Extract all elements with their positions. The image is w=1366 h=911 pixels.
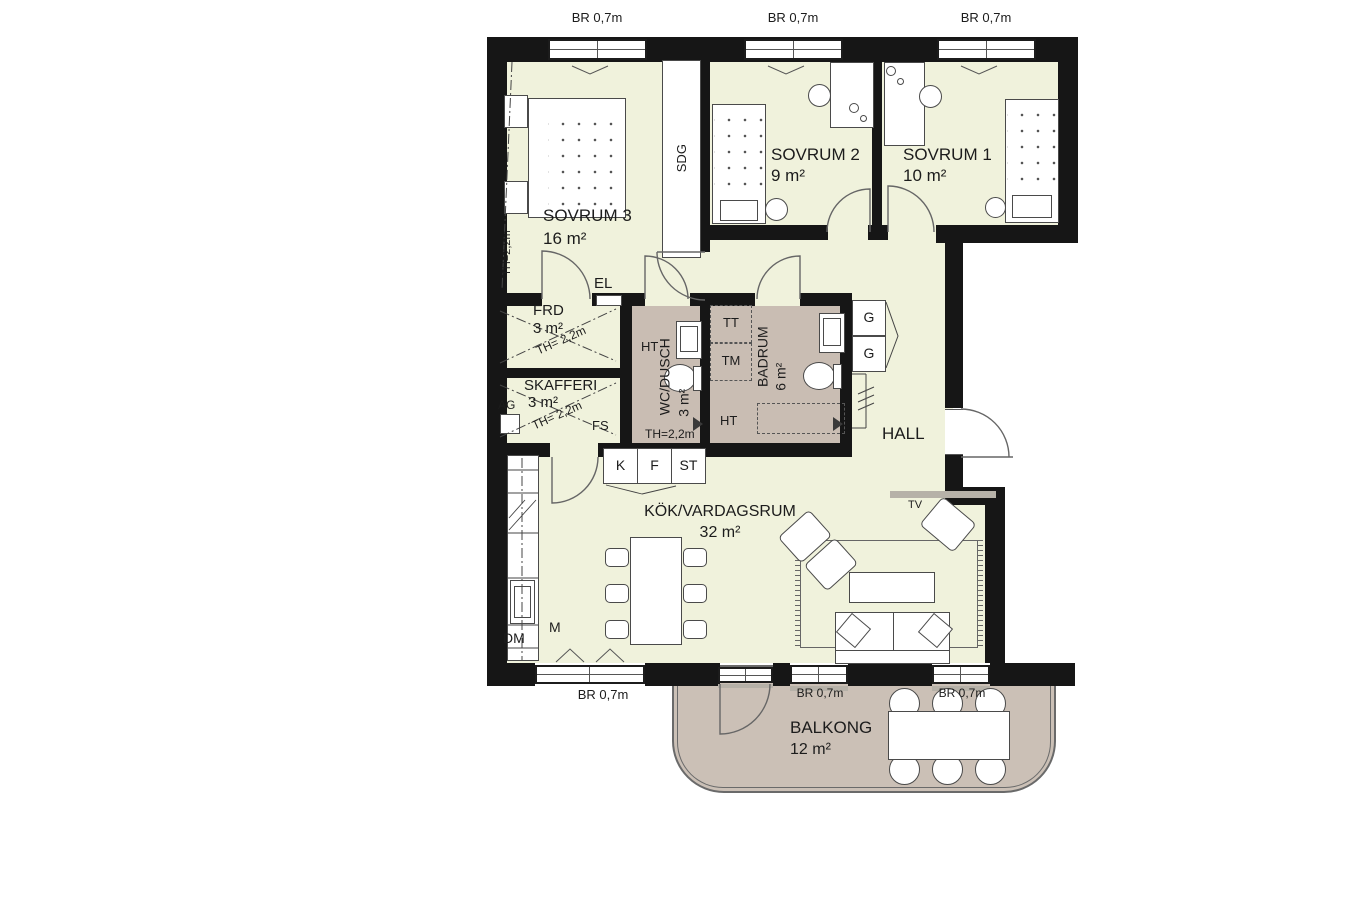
room-name-frd: FRD xyxy=(533,303,564,320)
bed-sovrum2-foot xyxy=(720,200,758,221)
badrum-sink-basin xyxy=(823,318,841,346)
skafferi-ag-unit xyxy=(500,414,520,434)
coffee-table xyxy=(849,572,935,603)
wall-hall-right-b xyxy=(945,455,963,487)
cabinet-k-label: K xyxy=(603,458,638,473)
room-area-sovrum1: 10 m² xyxy=(903,167,946,186)
window-kitchen xyxy=(535,665,645,684)
window-sovrum2 xyxy=(744,39,843,60)
room-name-hall: HALL xyxy=(882,425,925,444)
wall-left xyxy=(487,37,507,686)
dining-chair xyxy=(683,620,707,639)
room-area-kok: 32 m² xyxy=(630,524,810,542)
desk-sovrum2 xyxy=(830,62,874,128)
stool-sovrum2 xyxy=(765,198,788,221)
wardrobe-g2-label: G xyxy=(852,346,886,361)
balcony-door-sill xyxy=(718,684,773,688)
floorplan-canvas: BR 0,7m BR 0,7m BR 0,7m BR 0,7m BR 0,7m … xyxy=(0,0,1366,911)
wall-frd-right xyxy=(620,293,632,455)
wardrobe-sdg-label: SDG xyxy=(675,136,689,180)
double-bed-mattress xyxy=(548,110,618,208)
wall-bedrooms-bottom-b xyxy=(868,225,888,240)
wc-sink-basin xyxy=(680,326,698,352)
window-size-label: BR 0,7m xyxy=(791,687,849,700)
nightstand-1 xyxy=(504,95,528,128)
el-label: EL xyxy=(594,276,612,293)
window-size-label: BR 0,7m xyxy=(941,11,1031,25)
nightstand-2 xyxy=(504,181,528,214)
dining-chair xyxy=(605,548,629,567)
room-name-sovrum2: SOVRUM 2 xyxy=(771,146,860,165)
chair-sovrum1 xyxy=(919,85,942,108)
rug-fringe-right xyxy=(978,540,983,648)
balcony-door-frame xyxy=(718,667,773,683)
wall-living-right xyxy=(985,487,1005,663)
room-area-balkong: 12 m² xyxy=(790,741,831,759)
wall-bottom-c xyxy=(773,663,790,686)
wall-corridor-stub xyxy=(700,225,710,252)
room-area-sovrum2: 9 m² xyxy=(771,167,805,186)
window-size-label: BR 0,7m xyxy=(748,11,838,25)
lamp-sovrum1 xyxy=(886,66,896,76)
room-area-sovrum3: 16 m² xyxy=(543,230,586,249)
tm-label: TM xyxy=(716,354,746,368)
bed-sovrum1-foot xyxy=(1012,195,1052,218)
stool-sovrum1 xyxy=(985,197,1006,218)
dining-chair xyxy=(605,584,629,603)
ceiling-height-wc: TH=2,2m xyxy=(645,428,695,441)
el-cabinet xyxy=(596,295,622,306)
dining-chair xyxy=(683,584,707,603)
badrum-toilet-bowl xyxy=(803,362,835,390)
wall-hall-right-a xyxy=(945,243,963,408)
window-size-label: BR 0,7m xyxy=(552,11,642,25)
wall-bedrooms-bottom-a xyxy=(700,225,828,240)
dining-table xyxy=(630,537,682,645)
cabinet-f-label: F xyxy=(637,458,672,473)
window-sovrum1 xyxy=(937,39,1036,60)
wall-bottom-a xyxy=(487,663,535,686)
room-name-sovrum1: SOVRUM 1 xyxy=(903,146,992,165)
tv-label: TV xyxy=(908,499,922,511)
wall-bottom-e xyxy=(990,663,1075,686)
room-name-sovrum3: SOVRUM 3 xyxy=(543,207,632,226)
room-name-balkong: BALKONG xyxy=(790,719,872,738)
room-name-wc: WC/DUSCH xyxy=(657,327,672,427)
wardrobe-g1-label: G xyxy=(852,310,886,325)
wall-bottom-d xyxy=(848,663,932,686)
tt-label: TT xyxy=(716,316,746,330)
entry-door-threshold xyxy=(945,409,963,455)
dm-label: DM xyxy=(503,631,525,646)
room-area-badrum: 6 m² xyxy=(773,352,788,402)
room-name-kok: KÖK/VARDAGSRUM xyxy=(630,503,810,521)
wall-bottom-b xyxy=(645,663,720,686)
wc-toilet-tank xyxy=(693,366,702,391)
wall-right-upper xyxy=(1058,37,1078,243)
ceiling-height-sovrum3: TH=2,2m xyxy=(501,218,513,288)
ag-label: AG xyxy=(498,399,515,412)
lamp-sovrum2 xyxy=(849,103,859,113)
shower-zone xyxy=(757,403,845,434)
fs-label: FS xyxy=(592,419,609,433)
dining-chair xyxy=(683,548,707,567)
wall-wc-top-a xyxy=(632,293,645,306)
m-label: M xyxy=(549,620,561,635)
wall-sovrum3-sovrum2 xyxy=(700,47,710,225)
lamp-sovrum2-head xyxy=(860,115,867,122)
window-size-label: BR 0,7m xyxy=(933,687,991,700)
window-sovrum3 xyxy=(548,39,647,60)
wall-bedrooms-bottom-c xyxy=(936,225,1078,243)
room-name-badrum: BADRUM xyxy=(755,312,770,402)
bed-sovrum2-mattress xyxy=(714,106,764,194)
bed-sovrum1-mattress xyxy=(1007,101,1057,181)
lamp-sovrum1-head xyxy=(897,78,904,85)
room-area-wc: 3 m² xyxy=(676,378,691,428)
window-size-label: BR 0,7m xyxy=(558,688,648,702)
window-living-1 xyxy=(790,665,848,684)
balcony-table xyxy=(888,711,1010,760)
badrum-toilet-tank xyxy=(833,364,842,389)
window-living-2 xyxy=(932,665,990,684)
room-name-skafferi: SKAFFERI xyxy=(524,378,597,395)
dining-chair xyxy=(605,620,629,639)
cabinet-st-label: ST xyxy=(671,458,706,473)
chair-sovrum2 xyxy=(808,84,831,107)
ht-label-badrum: HT xyxy=(720,414,737,428)
kitchen-sink-basin xyxy=(514,586,531,618)
